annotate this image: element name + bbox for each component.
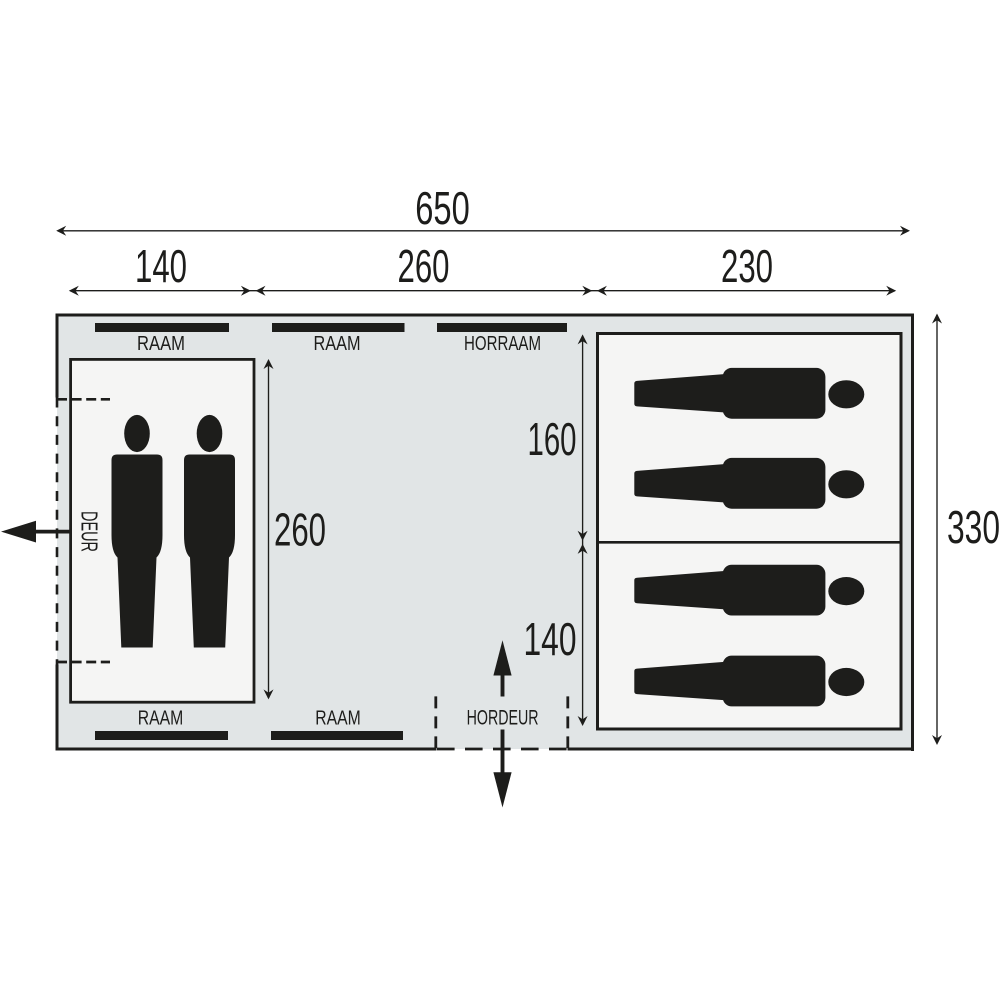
- svg-text:140: 140: [524, 613, 577, 665]
- svg-text:230: 230: [721, 240, 773, 292]
- svg-text:RAAM: RAAM: [315, 708, 361, 730]
- svg-text:260: 260: [274, 504, 326, 556]
- svg-text:RAAM: RAAM: [137, 332, 185, 355]
- svg-text:140: 140: [135, 240, 187, 292]
- svg-text:650: 650: [415, 182, 470, 234]
- svg-text:RAAM: RAAM: [138, 708, 184, 730]
- svg-text:DEUR: DEUR: [76, 511, 102, 552]
- svg-text:HORRAAM: HORRAAM: [464, 332, 541, 355]
- svg-text:330: 330: [947, 501, 1000, 553]
- svg-text:260: 260: [398, 240, 450, 292]
- svg-text:HORDEUR: HORDEUR: [467, 706, 539, 729]
- svg-text:RAAM: RAAM: [314, 332, 361, 355]
- svg-text:160: 160: [528, 413, 577, 465]
